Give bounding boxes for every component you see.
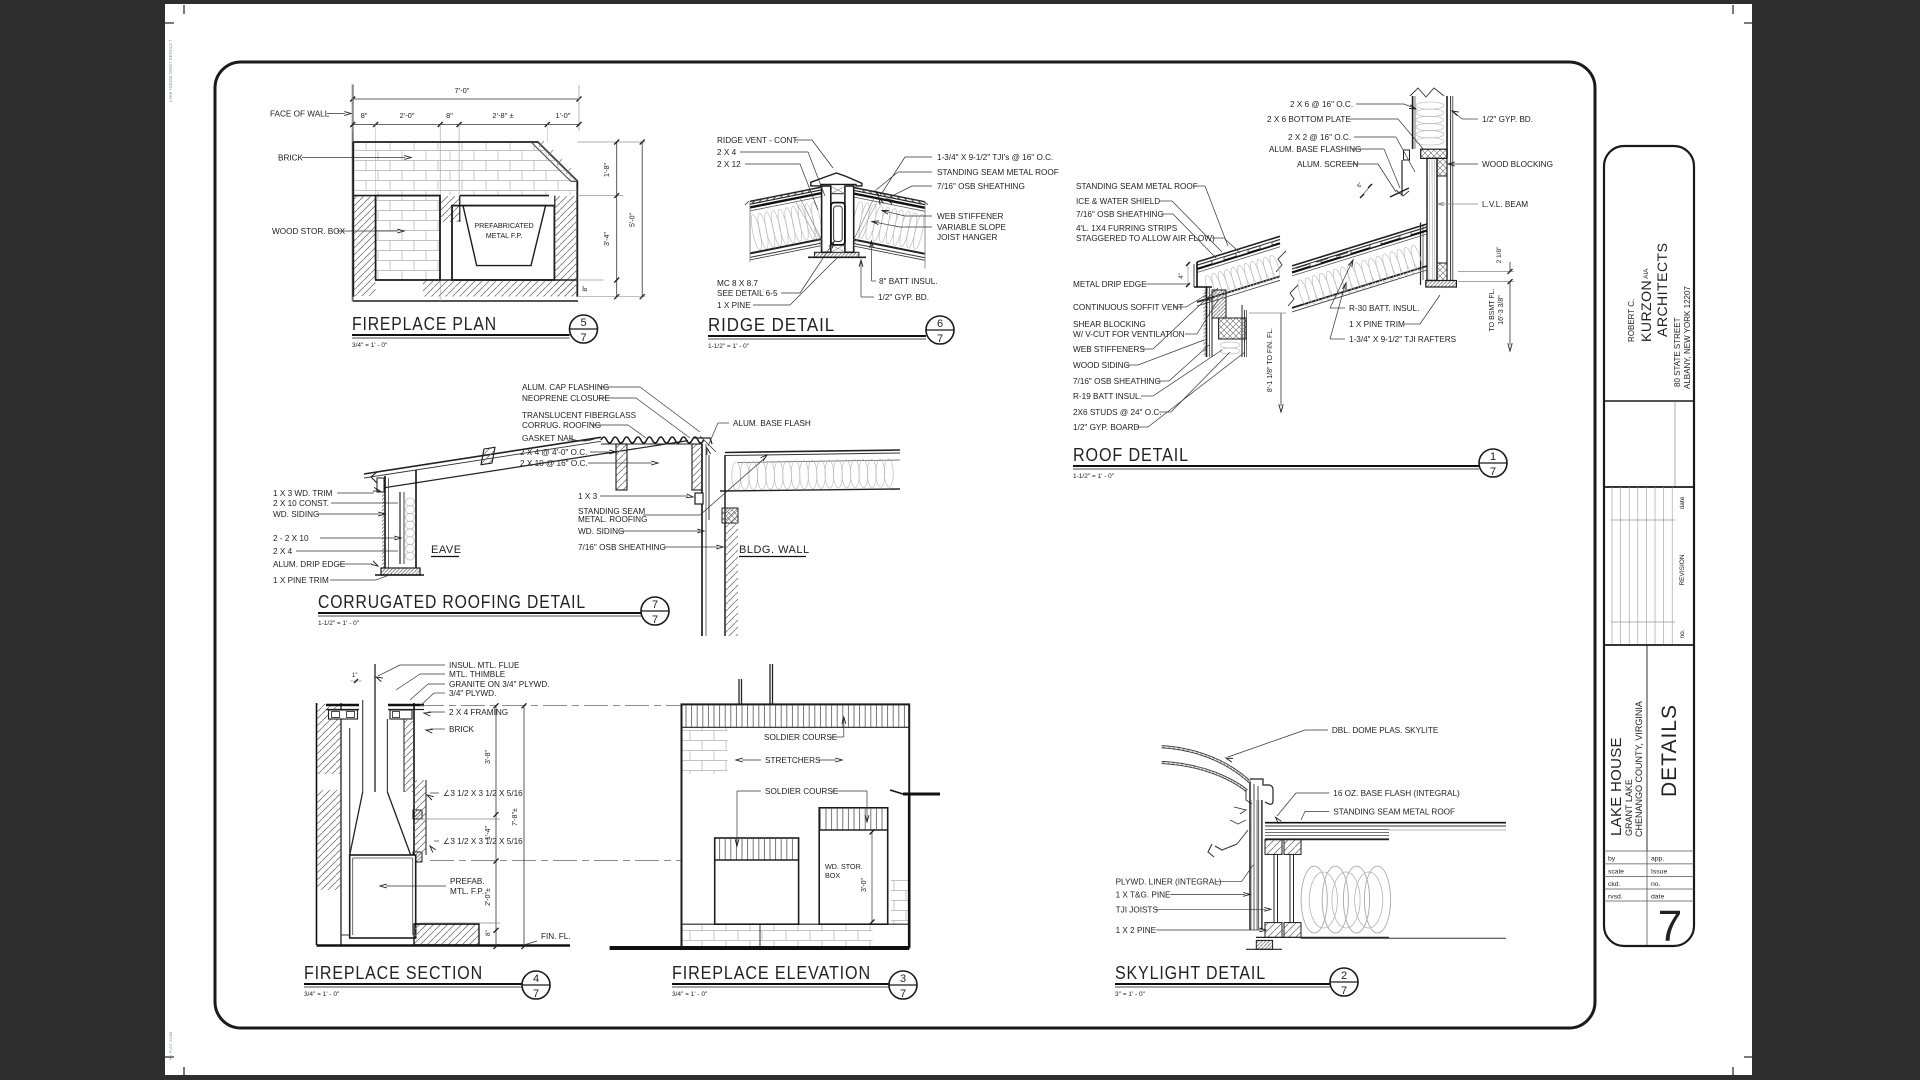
svg-text:CORRUGATED ROOFING DETAIL: CORRUGATED ROOFING DETAIL bbox=[318, 591, 586, 612]
svg-text:STRETCHERS: STRETCHERS bbox=[765, 756, 821, 765]
svg-text:GRANITE ON 3/4" PLYWD.: GRANITE ON 3/4" PLYWD. bbox=[449, 680, 550, 689]
svg-text:7: 7 bbox=[652, 599, 658, 611]
svg-text:WOOD STOR. BOX: WOOD STOR. BOX bbox=[272, 227, 346, 236]
svg-text:LAKE HOUSE: LAKE HOUSE bbox=[1608, 737, 1625, 836]
svg-text:BLDG. WALL: BLDG. WALL bbox=[739, 544, 810, 556]
svg-text:MTL. THIMBLE: MTL. THIMBLE bbox=[449, 670, 506, 679]
svg-text:8" BATT INSUL.: 8" BATT INSUL. bbox=[879, 277, 938, 286]
svg-text:8": 8" bbox=[485, 929, 492, 936]
svg-text:3: 3 bbox=[900, 973, 906, 985]
svg-text:8": 8" bbox=[446, 111, 453, 120]
svg-text:8": 8" bbox=[582, 285, 589, 292]
svg-text:1-1/2" = 1' - 0": 1-1/2" = 1' - 0" bbox=[1073, 473, 1115, 480]
svg-text:2 X 4 @ 4'-0" O.C.: 2 X 4 @ 4'-0" O.C. bbox=[520, 448, 587, 457]
svg-text:AIA: AIA bbox=[1643, 268, 1650, 279]
svg-text:8": 8" bbox=[361, 111, 368, 120]
svg-text:ICE & WATER SHIELD: ICE & WATER SHIELD bbox=[1076, 197, 1160, 206]
svg-text:FACE OF WALL: FACE OF WALL bbox=[270, 110, 330, 119]
svg-text:PLYWD. LINER (INTEGRAL): PLYWD. LINER (INTEGRAL) bbox=[1116, 878, 1222, 887]
svg-text:1 X 2 PINE: 1 X 2 PINE bbox=[1116, 926, 1157, 935]
svg-text:2'-0"±: 2'-0"± bbox=[485, 888, 492, 906]
svg-text:8'-1 1/8" TO FIN. FL.: 8'-1 1/8" TO FIN. FL. bbox=[1267, 328, 1274, 392]
svg-text:4: 4 bbox=[533, 973, 539, 985]
svg-text:7: 7 bbox=[1658, 902, 1682, 951]
svg-text:6: 6 bbox=[937, 318, 943, 330]
svg-text:VARIABLE SLOPE: VARIABLE SLOPE bbox=[937, 223, 1007, 232]
svg-text:2 X 4: 2 X 4 bbox=[273, 547, 293, 556]
svg-text:2 X 6 @ 16" O.C.: 2 X 6 @ 16" O.C. bbox=[1290, 100, 1353, 109]
svg-text:ALBANY, NEW YORK 12207: ALBANY, NEW YORK 12207 bbox=[1683, 286, 1692, 389]
svg-text:3'-0": 3'-0" bbox=[861, 878, 868, 892]
svg-text:2 X 4: 2 X 4 bbox=[717, 148, 737, 157]
svg-text:7'-8"±: 7'-8"± bbox=[512, 808, 519, 826]
svg-text:app.: app. bbox=[1651, 856, 1664, 863]
svg-text:4'L. 1X4 FURRING STRIPS: 4'L. 1X4 FURRING STRIPS bbox=[1076, 224, 1178, 233]
svg-text:GASKET NAIL: GASKET NAIL bbox=[522, 434, 576, 443]
svg-text:STAGGERED TO ALLOW AIR FLOW): STAGGERED TO ALLOW AIR FLOW) bbox=[1076, 234, 1215, 243]
svg-text:RIDGE DETAIL: RIDGE DETAIL bbox=[708, 314, 835, 335]
svg-text:LAKE HOUSE DWG7 DETAILS 7: LAKE HOUSE DWG7 DETAILS 7 bbox=[168, 39, 173, 102]
svg-text:SKYLIGHT DETAIL: SKYLIGHT DETAIL bbox=[1115, 962, 1266, 983]
svg-text:∠3 1/2 X 3 1/2 X 5/16: ∠3 1/2 X 3 1/2 X 5/16 bbox=[443, 837, 523, 846]
svg-text:7/16" OSB SHEATHING: 7/16" OSB SHEATHING bbox=[1073, 377, 1161, 386]
svg-text:1: 1 bbox=[1490, 451, 1496, 463]
svg-text:MTL. F.P.: MTL. F.P. bbox=[450, 887, 484, 896]
svg-text:TO BSMT FL.: TO BSMT FL. bbox=[1489, 288, 1496, 331]
svg-text:FIN. FL.: FIN. FL. bbox=[541, 932, 571, 941]
svg-text:1 X T&G. PINE: 1 X T&G. PINE bbox=[1116, 890, 1171, 899]
svg-text:1 X 3 WD. TRIM: 1 X 3 WD. TRIM bbox=[273, 489, 333, 498]
svg-text:CORRUG. ROOFING: CORRUG. ROOFING bbox=[522, 421, 601, 430]
svg-text:STANDING SEAM METAL ROOF: STANDING SEAM METAL ROOF bbox=[937, 168, 1059, 177]
svg-text:1/2" GYP. BOARD: 1/2" GYP. BOARD bbox=[1073, 423, 1140, 432]
svg-text:no.: no. bbox=[1679, 629, 1686, 638]
svg-text:3/4" PLYWD.: 3/4" PLYWD. bbox=[449, 689, 496, 698]
svg-text:2 1/8": 2 1/8" bbox=[1496, 246, 1503, 263]
svg-text:2'-8" ±: 2'-8" ± bbox=[492, 111, 513, 120]
svg-text:∠3 1/2 X 3 1/2 X 5/16: ∠3 1/2 X 3 1/2 X 5/16 bbox=[443, 789, 523, 798]
svg-text:FIREPLACE PLAN: FIREPLACE PLAN bbox=[352, 313, 497, 334]
svg-text:1-1/2" = 1' - 0": 1-1/2" = 1' - 0" bbox=[318, 620, 360, 627]
svg-text:2 X 6 BOTTOM PLATE: 2 X 6 BOTTOM PLATE bbox=[1267, 115, 1351, 124]
svg-text:Issue: Issue bbox=[1651, 868, 1667, 875]
svg-text:3/4" = 1' - 0": 3/4" = 1' - 0" bbox=[304, 991, 340, 998]
svg-text:2 X 2 @ 16" O.C.: 2 X 2 @ 16" O.C. bbox=[1288, 133, 1351, 142]
svg-text:1-1/2" = 1' - 0": 1-1/2" = 1' - 0" bbox=[708, 343, 750, 350]
svg-text:by: by bbox=[1608, 856, 1616, 863]
svg-text:DETAILS: DETAILS bbox=[1658, 704, 1681, 797]
svg-text:7'-0": 7'-0" bbox=[455, 86, 470, 95]
svg-text:3'-8": 3'-8" bbox=[485, 750, 492, 764]
svg-text:W/ V-CUT FOR VENTILATION: W/ V-CUT FOR VENTILATION bbox=[1073, 330, 1185, 339]
svg-text:ROBERT C.: ROBERT C. bbox=[1627, 299, 1636, 342]
svg-text:DBL. DOME PLAS. SKYLITE: DBL. DOME PLAS. SKYLITE bbox=[1332, 726, 1439, 735]
svg-text:7/16" OSB SHEATHING: 7/16" OSB SHEATHING bbox=[578, 543, 666, 552]
svg-text:2: 2 bbox=[1341, 970, 1347, 982]
svg-text:7: 7 bbox=[1341, 985, 1347, 997]
svg-text:INSUL. MTL. FLUE: INSUL. MTL. FLUE bbox=[449, 661, 520, 670]
svg-text:1 X 3: 1 X 3 bbox=[578, 492, 598, 501]
svg-text:2 X 10 CONST.: 2 X 10 CONST. bbox=[273, 499, 329, 508]
svg-text:1'-0": 1'-0" bbox=[556, 111, 571, 120]
svg-text:GRANT LAKE: GRANT LAKE bbox=[1624, 779, 1634, 836]
svg-text:5'-0": 5'-0" bbox=[630, 213, 637, 227]
svg-text:1/2" GYP. BD.: 1/2" GYP. BD. bbox=[1482, 115, 1533, 124]
svg-text:ALUM. CAP FLASHING: ALUM. CAP FLASHING bbox=[522, 383, 609, 392]
svg-text:METAL. ROOFING: METAL. ROOFING bbox=[578, 515, 647, 524]
svg-text:R-19 BATT INSUL.: R-19 BATT INSUL. bbox=[1073, 392, 1142, 401]
svg-text:1": 1" bbox=[352, 673, 357, 679]
svg-text:WOOD SIDING: WOOD SIDING bbox=[1073, 361, 1130, 370]
svg-text:WD. SIDING: WD. SIDING bbox=[578, 527, 624, 536]
svg-text:1/2" GYP. BD.: 1/2" GYP. BD. bbox=[878, 293, 929, 302]
svg-text:1-3/4" X 9-1/2" TJI's @ 16" O.: 1-3/4" X 9-1/2" TJI's @ 16" O.C. bbox=[937, 153, 1053, 162]
svg-text:WD. STOR.: WD. STOR. bbox=[825, 862, 863, 871]
svg-text:7: 7 bbox=[580, 332, 586, 344]
svg-text:7: 7 bbox=[1490, 466, 1496, 478]
svg-text:MC 8 X 8.7: MC 8 X 8.7 bbox=[717, 279, 758, 288]
svg-text:WD. SIDING: WD. SIDING bbox=[273, 510, 319, 519]
svg-text:ALUM. DRIP EDGE: ALUM. DRIP EDGE bbox=[273, 560, 346, 569]
svg-text:ROOF DETAIL: ROOF DETAIL bbox=[1073, 444, 1189, 465]
svg-text:2 X 12: 2 X 12 bbox=[717, 160, 741, 169]
svg-text:7: 7 bbox=[652, 614, 658, 626]
svg-text:16 OZ. BASE FLASH (INTEGRAL): 16 OZ. BASE FLASH (INTEGRAL) bbox=[1333, 789, 1460, 798]
svg-text:BRICK: BRICK bbox=[449, 725, 475, 734]
svg-text:EAVE: EAVE bbox=[431, 544, 462, 556]
svg-text:1 X PINE TRIM: 1 X PINE TRIM bbox=[273, 576, 329, 585]
svg-text:ckd.: ckd. bbox=[1608, 881, 1621, 888]
svg-text:TJI JOISTS: TJI JOISTS bbox=[1116, 905, 1159, 914]
svg-text:7/16" OSB SHEATHING: 7/16" OSB SHEATHING bbox=[937, 182, 1025, 191]
svg-text:80 STATE STREET: 80 STATE STREET bbox=[1673, 317, 1682, 387]
svg-text:7: 7 bbox=[937, 333, 943, 345]
svg-text:1 X PINE: 1 X PINE bbox=[717, 301, 751, 310]
svg-text:ARCHITECTS: ARCHITECTS bbox=[1654, 243, 1670, 337]
svg-text:2 - 2 X 10: 2 - 2 X 10 bbox=[273, 534, 309, 543]
svg-text:3'-4": 3'-4" bbox=[604, 232, 611, 246]
svg-text:ALUM. BASE FLASHING: ALUM. BASE FLASHING bbox=[1269, 145, 1361, 154]
svg-text:PREFABRICATED: PREFABRICATED bbox=[474, 221, 533, 230]
svg-text:3/4" = 1' - 0": 3/4" = 1' - 0" bbox=[672, 991, 708, 998]
svg-text:BRICK: BRICK bbox=[278, 154, 304, 163]
svg-text:16'-3 3/8": 16'-3 3/8" bbox=[1498, 295, 1505, 325]
svg-text:STANDING SEAM METAL ROOF: STANDING SEAM METAL ROOF bbox=[1076, 182, 1198, 191]
svg-text:2 X 10 @ 16" O.C.: 2 X 10 @ 16" O.C. bbox=[520, 459, 588, 468]
svg-text:5: 5 bbox=[580, 317, 586, 329]
svg-text:no.: no. bbox=[1651, 881, 1661, 888]
svg-text:WEB STIFFENERS: WEB STIFFENERS bbox=[1073, 345, 1145, 354]
svg-text:rvsd.: rvsd. bbox=[1608, 894, 1623, 901]
svg-text:METAL DRIP EDGE: METAL DRIP EDGE bbox=[1073, 280, 1147, 289]
svg-text:SOLDIER COURSE: SOLDIER COURSE bbox=[764, 733, 838, 742]
svg-text:1 X PINE TRIM: 1 X PINE TRIM bbox=[1349, 320, 1405, 329]
svg-text:CHENANGO COUNTY, VIRGINIA: CHENANGO COUNTY, VIRGINIA bbox=[1634, 701, 1644, 837]
svg-text:REVISION: REVISION bbox=[1679, 554, 1686, 585]
svg-text:1'-8": 1'-8" bbox=[604, 163, 611, 177]
svg-text:JOIST HANGER: JOIST HANGER bbox=[937, 233, 997, 242]
svg-text:KURZON: KURZON bbox=[1638, 280, 1654, 342]
svg-text:2X6 STUDS @ 24" O.C.: 2X6 STUDS @ 24" O.C. bbox=[1073, 408, 1162, 417]
svg-text:2'-0": 2'-0" bbox=[400, 111, 415, 120]
svg-text:7: 7 bbox=[900, 988, 906, 1000]
svg-text:7/16" OSB SHEATHING: 7/16" OSB SHEATHING bbox=[1076, 210, 1164, 219]
svg-text:scale: scale bbox=[1608, 868, 1624, 875]
svg-text:3" = 1' - 0": 3" = 1' - 0" bbox=[1115, 991, 1146, 998]
svg-text:WEB STIFFENER: WEB STIFFENER bbox=[937, 212, 1003, 221]
svg-text:4": 4" bbox=[1179, 273, 1185, 278]
svg-text:SEE DETAIL 6-5: SEE DETAIL 6-5 bbox=[717, 289, 778, 298]
svg-text:L.V.L. BEAM: L.V.L. BEAM bbox=[1482, 200, 1528, 209]
svg-text:NEOPRENE CLOSURE: NEOPRENE CLOSURE bbox=[522, 394, 610, 403]
svg-text:FIREPLACE ELEVATION: FIREPLACE ELEVATION bbox=[672, 962, 871, 983]
svg-text:ALUM. SCREEN: ALUM. SCREEN bbox=[1297, 160, 1359, 169]
svg-text:METAL F.P.: METAL F.P. bbox=[486, 231, 523, 240]
svg-text:CONTINUOUS SOFFIT VENT: CONTINUOUS SOFFIT VENT bbox=[1073, 303, 1183, 312]
svg-text:RK PLOT 01/08: RK PLOT 01/08 bbox=[168, 1031, 173, 1060]
svg-text:PREFAB.: PREFAB. bbox=[450, 877, 485, 886]
svg-text:date: date bbox=[1651, 894, 1664, 901]
svg-text:7: 7 bbox=[533, 988, 539, 1000]
svg-text:WOOD BLOCKING: WOOD BLOCKING bbox=[1482, 160, 1553, 169]
svg-text:SOLDIER COURSE: SOLDIER COURSE bbox=[765, 787, 839, 796]
svg-text:ALUM. BASE FLASH: ALUM. BASE FLASH bbox=[733, 419, 811, 428]
svg-text:3/4" = 1' - 0": 3/4" = 1' - 0" bbox=[352, 342, 388, 349]
svg-text:1-3/4" X 9-1/2" TJI RAFTERS: 1-3/4" X 9-1/2" TJI RAFTERS bbox=[1349, 335, 1457, 344]
svg-text:FIREPLACE SECTION: FIREPLACE SECTION bbox=[304, 962, 483, 983]
svg-text:2 X 4 FRAMING: 2 X 4 FRAMING bbox=[449, 708, 508, 717]
svg-text:TRANSLUCENT FIBERGLASS: TRANSLUCENT FIBERGLASS bbox=[522, 411, 637, 420]
svg-text:STANDING SEAM METAL ROOF: STANDING SEAM METAL ROOF bbox=[1333, 808, 1455, 817]
svg-text:BOX: BOX bbox=[825, 871, 840, 880]
svg-text:SHEAR BLOCKING: SHEAR BLOCKING bbox=[1073, 320, 1146, 329]
svg-text:R-30 BATT. INSUL.: R-30 BATT. INSUL. bbox=[1349, 304, 1419, 313]
svg-text:date: date bbox=[1679, 496, 1686, 509]
svg-text:RIDGE VENT - CONT.: RIDGE VENT - CONT. bbox=[717, 136, 799, 145]
